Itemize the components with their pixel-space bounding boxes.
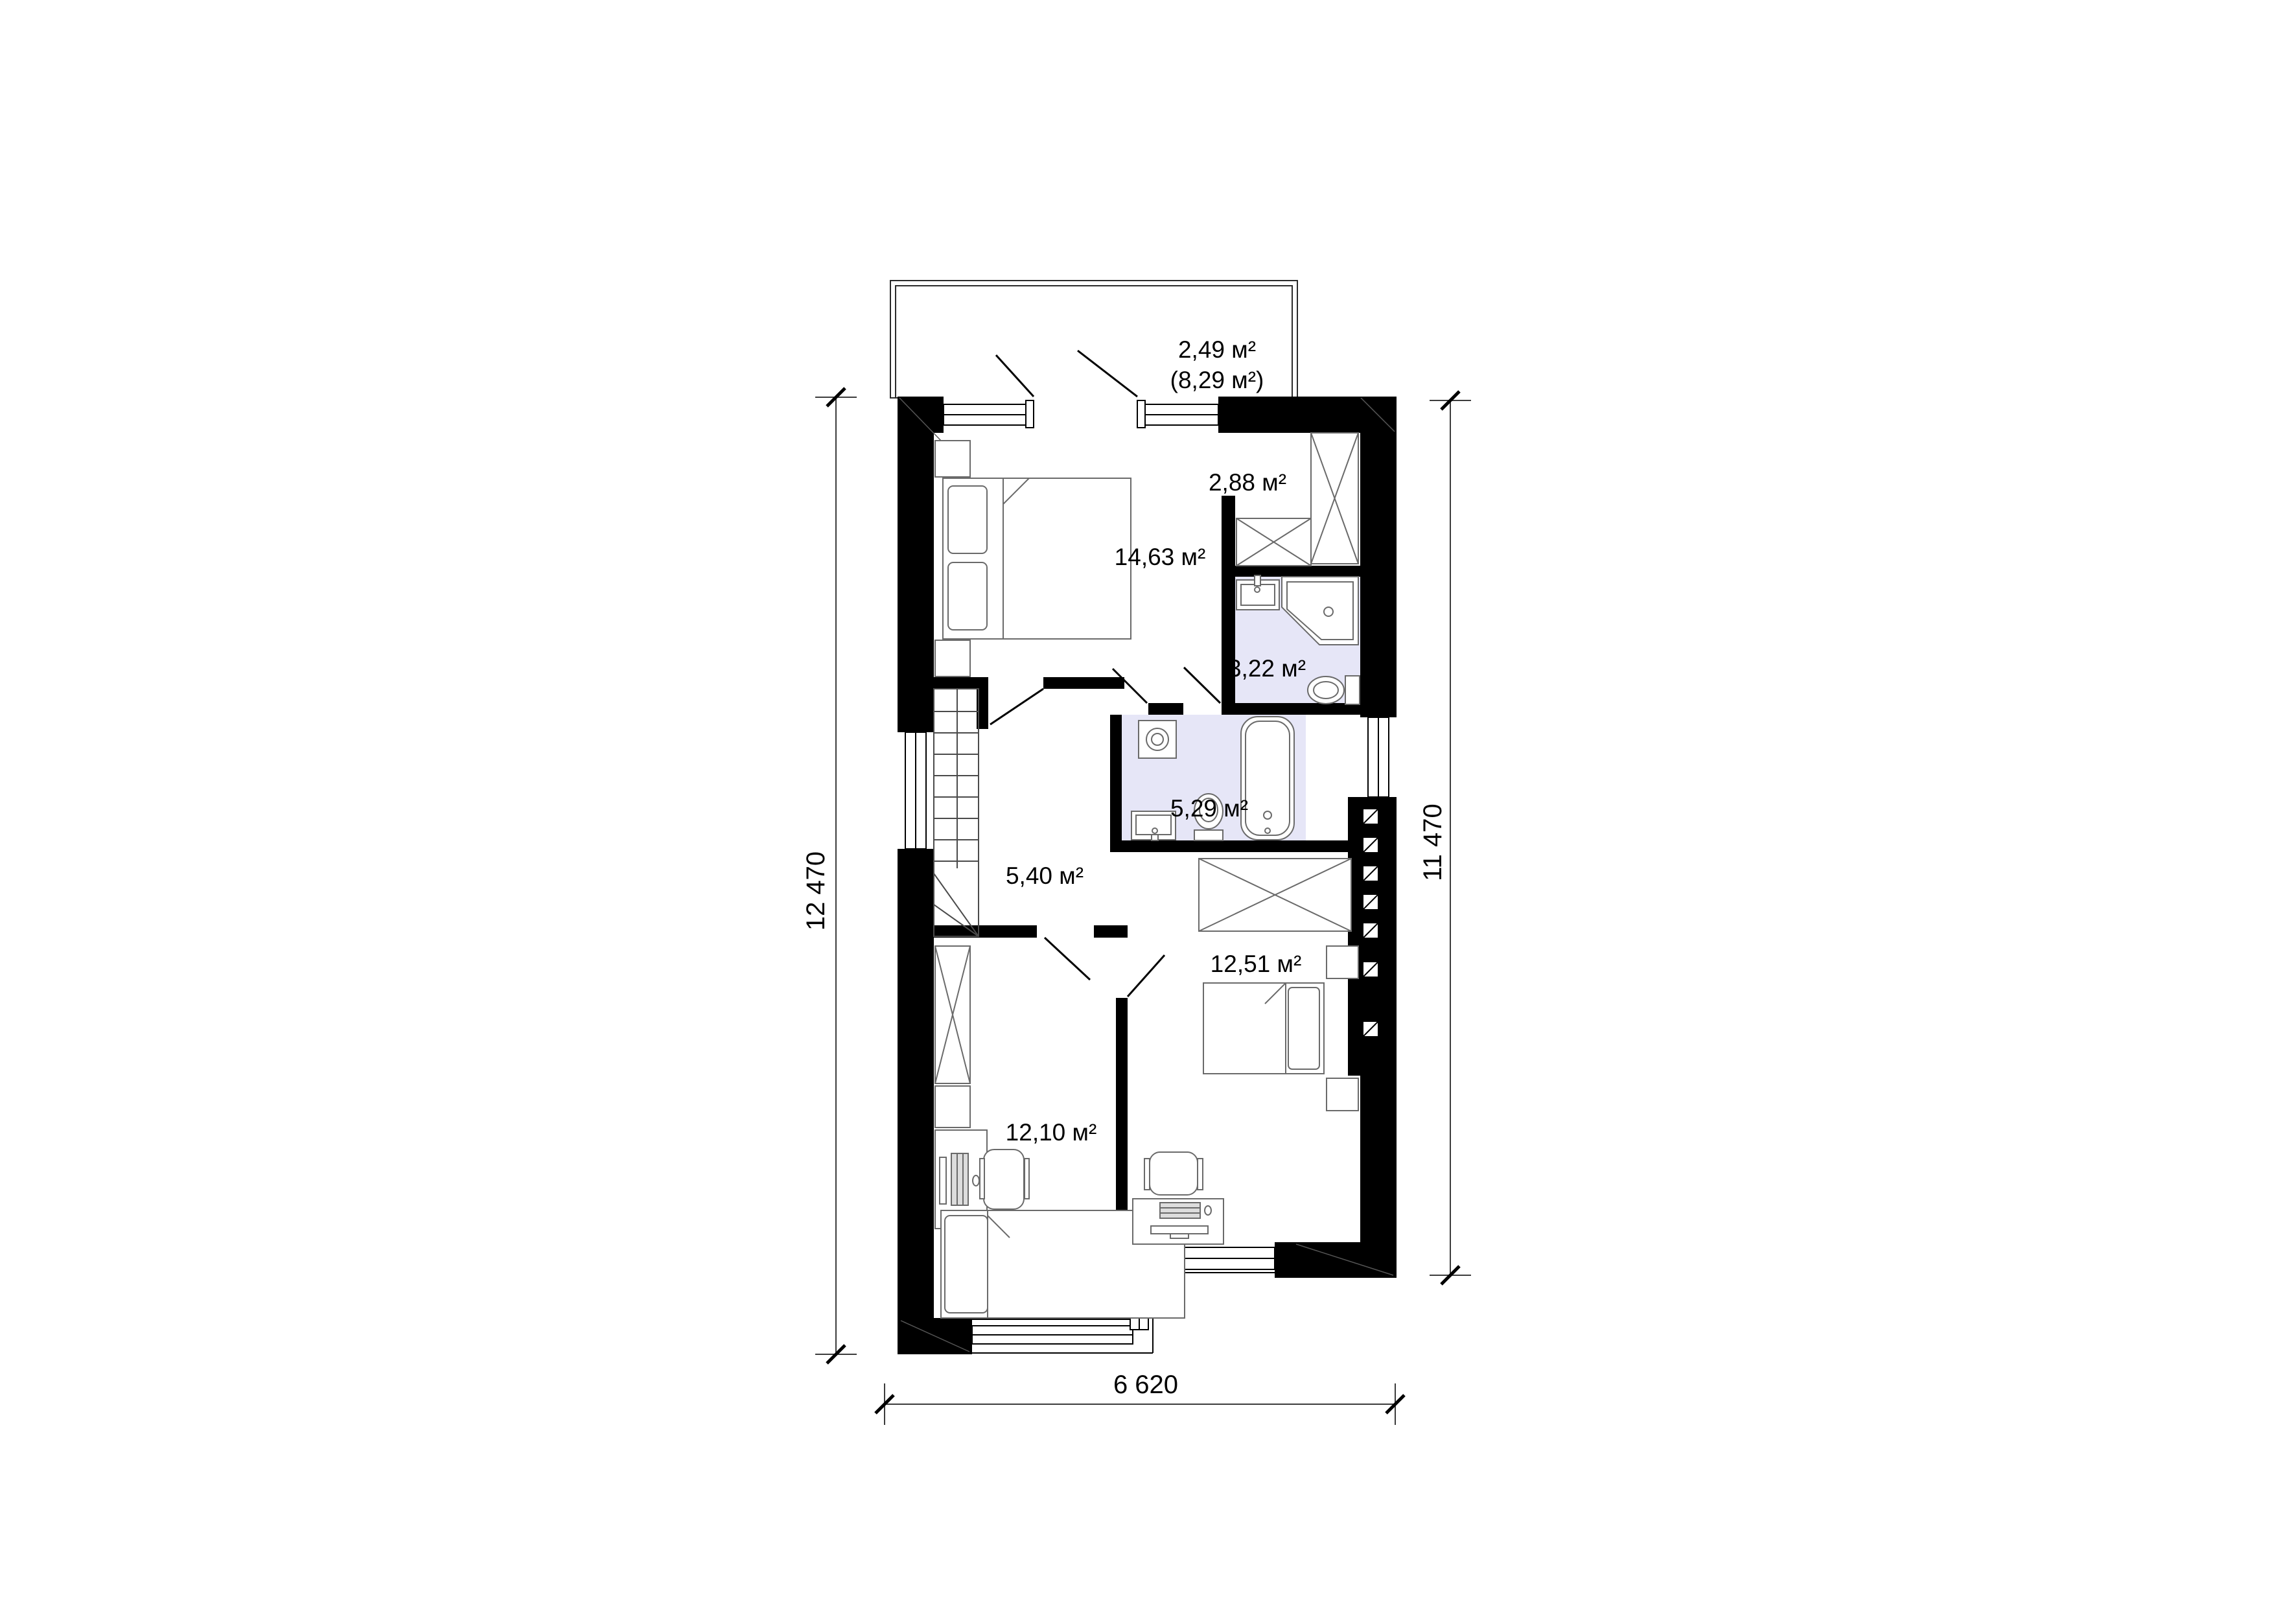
sink xyxy=(1236,575,1279,610)
pillow xyxy=(948,486,987,553)
balcony-total-label: (8,29 м²) xyxy=(1170,367,1264,393)
monitor xyxy=(940,1157,946,1204)
keyboard xyxy=(1160,1203,1200,1218)
floor-plan: 2,49 м² (8,29 м²) 14,63 м² 2,88 м² 3,22 … xyxy=(0,0,2296,1607)
dimension-label-left: 12 470 xyxy=(802,851,830,931)
room-label-bath-small: 3,22 м² xyxy=(1228,655,1306,682)
balcony-door-jamb-left xyxy=(1026,400,1034,428)
room-label-bath-main: 5,29 м² xyxy=(1170,795,1248,822)
wardrobe xyxy=(935,946,970,1083)
nightstand xyxy=(1327,1078,1358,1111)
dimension-label-bottom: 6 620 xyxy=(1113,1370,1178,1399)
room-label-bedroom-main: 14,63 м² xyxy=(1115,544,1206,570)
wall-left xyxy=(898,397,934,1354)
sink xyxy=(1131,811,1176,840)
wall-bedroom-partition xyxy=(1116,998,1128,1244)
bedroom-main-door-leaf xyxy=(990,689,1043,724)
mouse xyxy=(1205,1206,1211,1215)
nightstand xyxy=(1327,946,1358,978)
office-chair xyxy=(980,1150,1029,1209)
washing-machine xyxy=(1139,721,1176,758)
pillow xyxy=(945,1216,988,1313)
wardrobe-closet-low xyxy=(1236,518,1311,566)
wall-bedroom-bottom-a xyxy=(919,677,986,689)
dimension-label-right: 11 470 xyxy=(1419,803,1447,881)
bathtub xyxy=(1241,717,1294,840)
room-label-hallway: 5,40 м² xyxy=(1006,862,1084,889)
pillow xyxy=(948,562,987,630)
balcony-door-jamb-right xyxy=(1137,400,1145,428)
balcony-area-label: 2,49 м² xyxy=(1178,336,1256,363)
balcony-door-leaf-left xyxy=(996,355,1034,397)
room-label-closet: 2,88 м² xyxy=(1209,469,1286,496)
desk-computer xyxy=(1133,1199,1223,1244)
pillow xyxy=(1288,988,1319,1069)
wall-closet-partition xyxy=(1222,496,1235,715)
bedroom-left-door-leaf xyxy=(1045,938,1090,980)
keyboard xyxy=(951,1153,968,1205)
wall-bottom-right-b xyxy=(1275,1242,1397,1278)
bedroom-right-door-leaf xyxy=(1128,955,1165,997)
doors xyxy=(990,351,1220,997)
wardrobe xyxy=(1199,859,1351,931)
wall-bath-main-left xyxy=(1110,715,1122,852)
wall-bath-band-a xyxy=(1148,703,1183,715)
wall-hall-stub xyxy=(1094,925,1128,938)
nightstand xyxy=(935,441,970,477)
office-chair xyxy=(1144,1152,1203,1195)
wall-closet-bottom xyxy=(1233,566,1360,577)
wall-bath-band-b xyxy=(1222,703,1360,715)
monitor xyxy=(1151,1226,1208,1234)
dresser xyxy=(935,1086,970,1127)
bed-main xyxy=(935,441,1131,676)
room-label-bedroom-left: 12,10 м² xyxy=(1006,1119,1097,1146)
bath-small-door-leaf xyxy=(1184,667,1220,703)
wall-bath-main-bottom xyxy=(1110,840,1348,852)
stairs xyxy=(934,689,979,936)
mouse xyxy=(973,1175,979,1186)
balcony-door-leaf-right xyxy=(1078,351,1137,397)
wall-bedroom-bottom-b xyxy=(1043,677,1124,689)
wardrobe-closet-tall xyxy=(1311,433,1358,564)
nightstand xyxy=(935,640,970,676)
room-label-bedroom-right: 12,51 м² xyxy=(1211,951,1302,977)
toilet xyxy=(1308,676,1360,704)
